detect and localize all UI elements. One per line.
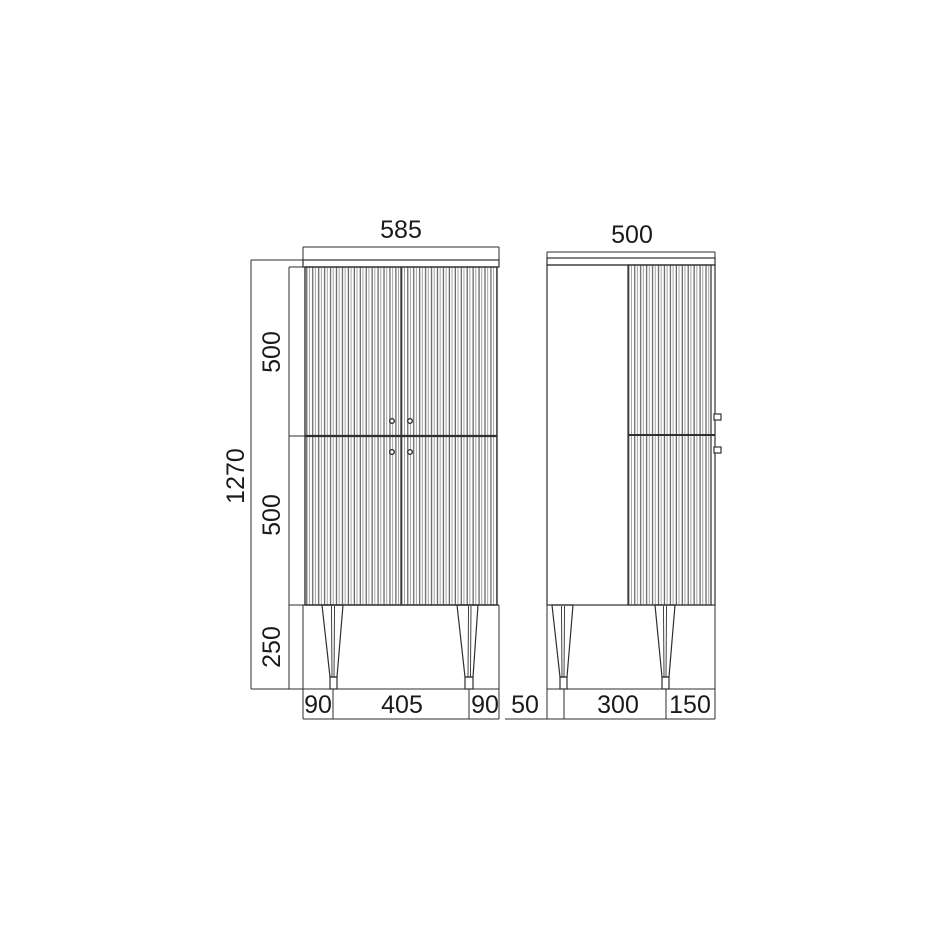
dim-label-side-bottom-center: 300 [597,691,639,719]
dim-label-total-height: 1270 [222,448,250,504]
dim-label-lower-section: 500 [258,494,286,536]
dim-label-front-width: 585 [380,216,422,244]
knob-upper-right [408,419,413,424]
knob-lower-left [390,450,395,455]
front-right-leg [457,605,478,689]
dim-label-side-depth: 500 [611,221,653,249]
side-front-leg [655,605,675,689]
dim-label-front-bottom-left: 90 [304,691,332,719]
technical-drawing-page: 585 1270 500 500 250 90 405 90 [0,0,950,950]
cabinet-dimension-drawing: 585 1270 500 500 250 90 405 90 [0,0,950,950]
knob-upper-left [390,419,395,424]
dim-label-leg-section: 250 [258,626,286,668]
side-rear-leg [552,605,573,689]
side-knob-upper [714,414,721,420]
knob-lower-right [408,450,413,455]
front-top-panel [303,260,499,267]
side-view [547,258,721,689]
dim-label-front-bottom-right: 90 [471,691,499,719]
dim-label-side-bottom-right: 150 [669,691,711,719]
dim-label-front-bottom-center: 405 [381,691,423,719]
front-left-leg [322,605,343,689]
dim-label-side-bottom-left: 50 [511,691,539,719]
dim-bracket-1270 [251,260,303,689]
side-knob-lower [714,447,721,453]
dim-label-upper-section: 500 [258,331,286,373]
side-top-panel [547,258,715,265]
front-view [303,260,499,689]
